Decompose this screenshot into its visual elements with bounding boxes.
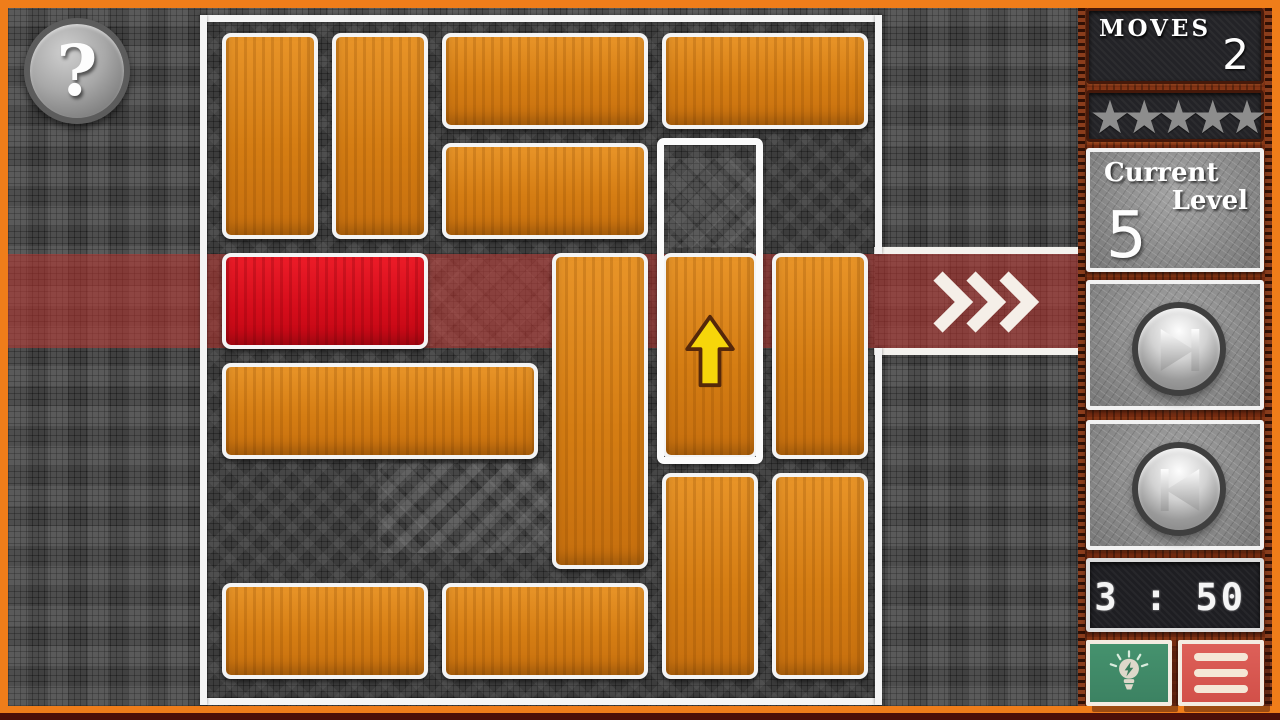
skip-previous-icon xyxy=(1145,455,1215,525)
board-frame xyxy=(875,15,882,254)
orange-block[interactable] xyxy=(222,363,538,459)
help-button[interactable]: ? xyxy=(24,18,130,124)
orange-block[interactable] xyxy=(772,253,868,459)
previous-level-panel xyxy=(1086,420,1264,550)
board-frame xyxy=(200,15,207,705)
orange-block[interactable] xyxy=(222,33,318,239)
orange-block[interactable] xyxy=(662,253,758,459)
moves-panel: MOVES 2 xyxy=(1086,8,1264,84)
moves-count: 2 xyxy=(1222,30,1249,79)
orange-block[interactable] xyxy=(442,143,648,239)
board-frame xyxy=(875,348,882,705)
previous-level-button[interactable] xyxy=(1132,442,1226,536)
question-mark-icon: ? xyxy=(56,29,97,112)
hamburger-icon xyxy=(1192,650,1250,696)
bottom-trim xyxy=(0,713,1280,720)
menu-button[interactable] xyxy=(1178,640,1264,706)
exit-lane-border xyxy=(874,247,1078,254)
exit-arrows-icon xyxy=(932,270,1040,338)
star-rating-icons: ★★★★★ xyxy=(1089,93,1261,141)
board-texture-patch xyxy=(378,463,568,553)
hint-button[interactable] xyxy=(1086,640,1172,706)
skip-next-icon xyxy=(1145,315,1215,385)
timer-value: 3 : 50 xyxy=(1094,576,1246,619)
current-level-value: 5 xyxy=(1106,204,1147,268)
board-texture-patch xyxy=(668,158,760,248)
exit-lane xyxy=(8,254,1078,348)
orange-block[interactable] xyxy=(662,33,868,129)
play-area: ? xyxy=(8,8,1078,706)
red-target-block[interactable] xyxy=(222,253,428,349)
orange-block[interactable] xyxy=(662,473,758,679)
orange-block[interactable] xyxy=(552,253,648,569)
current-level-label: Current xyxy=(1104,158,1218,188)
moves-label: MOVES xyxy=(1099,15,1211,42)
stars-panel: ★★★★★ xyxy=(1086,90,1264,142)
orange-block[interactable] xyxy=(442,33,648,129)
next-level-panel xyxy=(1086,280,1264,410)
orange-block[interactable] xyxy=(222,583,428,679)
orange-block[interactable] xyxy=(332,33,428,239)
board-frame xyxy=(200,15,882,22)
sidebar: MOVES 2 ★★★★★ Current Level 5 xyxy=(1078,8,1272,706)
board-frame xyxy=(200,698,882,705)
wood-trim xyxy=(1265,8,1272,706)
current-level-panel: Current Level 5 xyxy=(1086,148,1264,272)
next-level-button[interactable] xyxy=(1132,302,1226,396)
lightbulb-icon xyxy=(1103,647,1155,699)
orange-block[interactable] xyxy=(772,473,868,679)
current-level-label: Level xyxy=(1172,186,1248,216)
exit-lane-border xyxy=(874,348,1078,355)
wood-trim xyxy=(1078,8,1085,706)
hint-arrow-up-icon xyxy=(681,313,739,389)
orange-block[interactable] xyxy=(442,583,648,679)
timer-panel: 3 : 50 xyxy=(1086,558,1264,632)
game-screen: ? MOVES 2 ★★★★★ Current xyxy=(0,0,1280,720)
